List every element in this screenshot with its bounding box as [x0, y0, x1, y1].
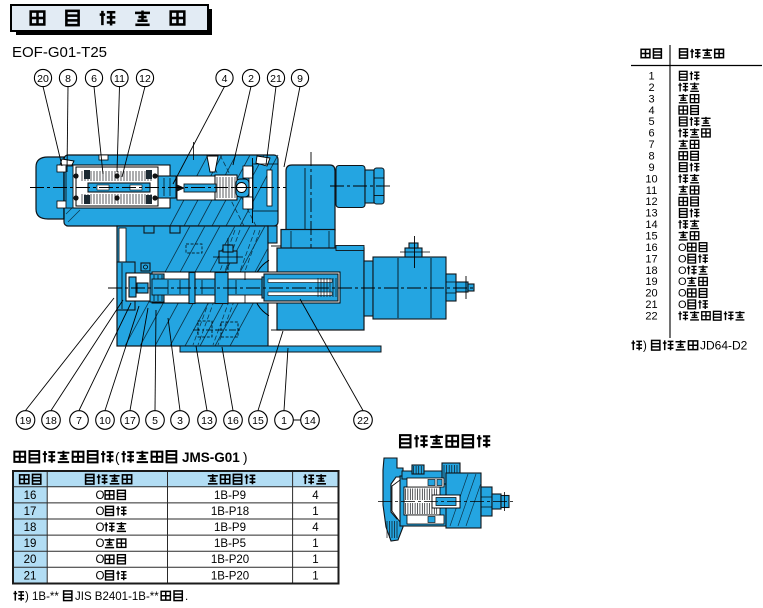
- svg-text:): ): [643, 341, 647, 353]
- svg-text:17: 17: [124, 415, 136, 427]
- svg-text:15: 15: [645, 231, 657, 243]
- svg-text:2: 2: [648, 82, 654, 94]
- svg-text:(: (: [115, 450, 120, 465]
- svg-text:1: 1: [312, 570, 318, 582]
- svg-text:EOF-G01-T25: EOF-G01-T25: [12, 44, 107, 61]
- svg-text:4: 4: [312, 490, 319, 502]
- svg-text:1: 1: [281, 415, 287, 427]
- svg-text:O: O: [678, 265, 687, 277]
- svg-text:13: 13: [201, 415, 213, 427]
- svg-text:6: 6: [648, 128, 654, 140]
- svg-text:14: 14: [645, 219, 657, 231]
- svg-text:JMS-G01: JMS-G01: [182, 450, 240, 465]
- svg-text:19: 19: [20, 415, 32, 427]
- svg-text:JIS B2401-1B-**: JIS B2401-1B-**: [75, 591, 159, 603]
- svg-text:11: 11: [646, 185, 657, 197]
- svg-text:2: 2: [248, 73, 254, 85]
- svg-text:4: 4: [648, 105, 654, 117]
- svg-text:JD64-D2: JD64-D2: [700, 339, 748, 353]
- svg-text:O: O: [96, 506, 105, 518]
- svg-text:3: 3: [648, 93, 654, 105]
- svg-text:15: 15: [252, 415, 264, 427]
- svg-text:8: 8: [65, 73, 71, 85]
- svg-text:1B-P5: 1B-P5: [214, 538, 246, 550]
- svg-text:21: 21: [645, 299, 657, 311]
- svg-text:17: 17: [645, 253, 657, 265]
- svg-text:O: O: [678, 288, 687, 300]
- svg-text:4: 4: [222, 73, 228, 85]
- svg-text:4: 4: [312, 522, 319, 534]
- svg-text:1B-**: 1B-**: [32, 591, 59, 603]
- svg-text:16: 16: [645, 242, 657, 254]
- svg-text:O: O: [678, 299, 687, 311]
- svg-text:21: 21: [270, 73, 282, 85]
- svg-text:1B-P9: 1B-P9: [214, 490, 246, 502]
- svg-text:1B-P9: 1B-P9: [214, 522, 246, 534]
- svg-text:): ): [25, 591, 29, 603]
- svg-text:19: 19: [645, 276, 657, 288]
- svg-text:7: 7: [648, 139, 654, 151]
- svg-text:5: 5: [152, 415, 158, 427]
- svg-text:12: 12: [645, 196, 657, 208]
- svg-text:9: 9: [297, 73, 303, 85]
- svg-text:18: 18: [45, 415, 57, 427]
- svg-text:O: O: [678, 276, 687, 288]
- svg-text:10: 10: [645, 173, 657, 185]
- svg-text:9: 9: [648, 162, 654, 174]
- svg-text:7: 7: [76, 415, 82, 427]
- svg-text:O: O: [96, 570, 105, 582]
- svg-text:5: 5: [648, 116, 654, 128]
- svg-text:18: 18: [24, 522, 37, 534]
- svg-text:1: 1: [312, 554, 318, 566]
- svg-text:19: 19: [24, 538, 37, 550]
- svg-text:O: O: [96, 490, 105, 502]
- svg-text:1: 1: [312, 506, 318, 518]
- svg-text:11: 11: [114, 73, 125, 85]
- svg-text:20: 20: [24, 554, 37, 566]
- svg-text:O: O: [678, 242, 687, 254]
- svg-text:16: 16: [227, 415, 239, 427]
- svg-text:1B-P20: 1B-P20: [211, 570, 249, 582]
- svg-text:1: 1: [648, 71, 654, 83]
- svg-text:1B-P20: 1B-P20: [211, 554, 249, 566]
- svg-text:O: O: [96, 554, 105, 566]
- svg-text:O: O: [678, 253, 687, 265]
- svg-text:12: 12: [139, 73, 151, 85]
- svg-text:18: 18: [645, 265, 657, 277]
- svg-text:16: 16: [24, 490, 37, 502]
- svg-text:): ): [243, 450, 248, 465]
- svg-text:O: O: [96, 522, 105, 534]
- svg-text:20: 20: [645, 288, 657, 300]
- svg-text:14: 14: [304, 415, 316, 427]
- svg-text:10: 10: [99, 415, 111, 427]
- svg-text:8: 8: [648, 151, 654, 163]
- svg-text:O: O: [96, 538, 105, 550]
- svg-text:6: 6: [91, 73, 97, 85]
- svg-text:3: 3: [177, 415, 183, 427]
- svg-text:17: 17: [24, 506, 37, 518]
- svg-text:21: 21: [24, 570, 37, 582]
- svg-text:1: 1: [312, 538, 318, 550]
- svg-text:22: 22: [645, 311, 657, 323]
- svg-text:22: 22: [357, 415, 369, 427]
- svg-text:20: 20: [37, 73, 49, 85]
- svg-text:1B-P18: 1B-P18: [211, 506, 249, 518]
- svg-text:.: .: [185, 591, 188, 603]
- svg-text:13: 13: [645, 208, 657, 220]
